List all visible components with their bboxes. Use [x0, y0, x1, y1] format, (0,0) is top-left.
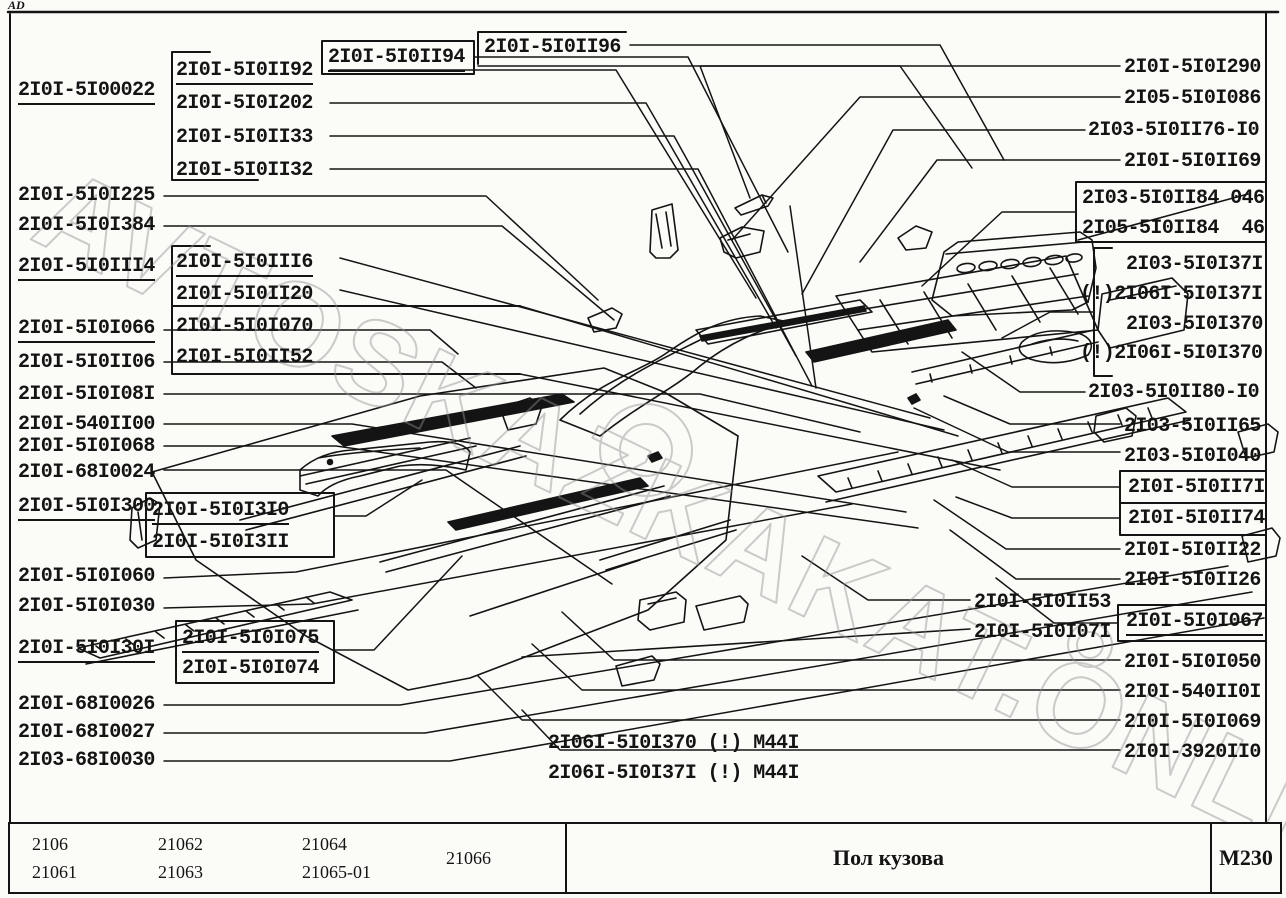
part-number-callout: 2I0I-5I0II92	[176, 60, 313, 85]
part-number-callout: 2I0I-5I0I075	[182, 628, 319, 653]
part-number-callout: 2I0I-540II0I	[1124, 682, 1261, 704]
part-number-callout: 2I03-5I0II80-I0	[1088, 382, 1259, 404]
part-number-callout: 2I0I-5I0I074	[182, 658, 319, 680]
model-number: 21064	[302, 834, 347, 855]
part-number-callout: 2I0I-3920II0	[1124, 742, 1261, 764]
part-number-callout: 2I0I-540II00	[18, 414, 155, 436]
part-number-callout: 2I0I-5I0I3II	[152, 532, 289, 554]
title-cell: Пол кузова	[567, 824, 1212, 892]
part-number-callout: 2I0I-5I0I300	[18, 496, 155, 521]
part-number-callout: 2I0I-5I0I050	[1124, 652, 1261, 674]
corner-mark: AD	[8, 0, 25, 13]
part-number-callout: 2I0I-5I0II32	[176, 160, 313, 182]
part-number-callout: 2I0I-5I0I30I	[18, 638, 155, 663]
model-number: 21061	[32, 862, 77, 883]
part-number-callout: 2I0I-5I0I202	[176, 93, 313, 115]
part-number-callout: 2I0I-5I0II06	[18, 352, 155, 374]
model-number: 2106	[32, 834, 68, 855]
model-number: 21066	[446, 848, 491, 869]
part-number-callout: 2I03-5I0II76-I0	[1088, 120, 1259, 142]
part-number-callout: (!)2I06I-5I0I37I	[1080, 284, 1262, 306]
part-number-callout: 2I0I-68I0024	[18, 462, 155, 484]
model-list-cell: 2106 21061 21062 21063 21064 21065-01 21…	[10, 824, 567, 892]
part-number-callout: 2I0I-5I0III6	[176, 252, 313, 277]
part-number-callout: 2I03-5I0I370	[1126, 314, 1263, 336]
part-number-callout: 2I06I-5I0I37I (!) M44I	[548, 763, 799, 785]
part-number-callout: 2I0I-5I0II53	[974, 592, 1111, 614]
sheet-code-cell: М230	[1212, 824, 1280, 892]
part-number-callout: 2I06I-5I0I370 (!) M44I	[548, 733, 799, 755]
part-number-callout: 2I03-5I0II65	[1124, 416, 1261, 438]
part-number-callout: 2I0I-68I0026	[18, 694, 155, 716]
part-number-callout: 2I0I-5I0I069	[1124, 712, 1261, 734]
part-number-callout: 2I0I-5I0I070	[176, 316, 313, 338]
part-number-callout: 2I0I-5I0I030	[18, 596, 155, 618]
part-number-callout: 2I05-5I0I086	[1124, 88, 1261, 110]
part-number-callout: 2I0I-5I0I08I	[18, 384, 155, 406]
part-number-callout: 2I0I-5I0II52	[176, 347, 313, 369]
part-number-callout: 2I0I-5I0II7I	[1128, 477, 1265, 499]
sheet-code: М230	[1219, 845, 1273, 871]
part-number-callouts: 2I0I-5I000222I0I-5I0I2252I0I-5I0I3842I0I…	[0, 0, 1286, 898]
part-number-callout: 2I0I-5I0I067	[1126, 611, 1263, 636]
part-number-callout: 2I0I-68I0027	[18, 722, 155, 744]
part-number-callout: 2I03-5I0II84 046	[1082, 188, 1264, 210]
part-number-callout: 2I0I-5I0I068	[18, 436, 155, 458]
part-number-callout: 2I0I-5I0II94	[328, 47, 465, 72]
footer-table: 2106 21061 21062 21063 21064 21065-01 21…	[8, 822, 1282, 894]
catalog-page: AD	[0, 0, 1286, 898]
part-number-callout: (!)2I06I-5I0I370	[1080, 343, 1262, 365]
part-number-callout: 2I0I-5I0I07I	[974, 622, 1111, 644]
part-number-callout: 2I0I-5I0II20	[176, 284, 313, 306]
part-number-callout: 2I0I-5I0I060	[18, 566, 155, 588]
part-number-callout: 2I0I-5I0II74	[1128, 508, 1265, 530]
part-number-callout: 2I05-5I0II84 46	[1082, 218, 1264, 240]
part-number-callout: 2I0I-5I0II96	[484, 37, 621, 59]
part-number-callout: 2I03-5I0I040	[1124, 446, 1261, 468]
page-title: Пол кузова	[833, 845, 944, 871]
part-number-callout: 2I0I-5I0I225	[18, 185, 155, 207]
part-number-callout: 2I0I-5I0II69	[1124, 151, 1261, 173]
model-number: 21065-01	[302, 862, 371, 883]
part-number-callout: 2I0I-5I0III4	[18, 256, 155, 281]
part-number-callout: 2I0I-5I0I3I0	[152, 500, 289, 525]
part-number-callout: 2I0I-5I0I384	[18, 215, 155, 237]
part-number-callout: 2I03-5I0I37I	[1126, 254, 1263, 276]
model-number: 21062	[158, 834, 203, 855]
part-number-callout: 2I0I-5I00022	[18, 80, 155, 105]
part-number-callout: 2I0I-5I0II33	[176, 127, 313, 149]
part-number-callout: 2I0I-5I0I066	[18, 318, 155, 343]
part-number-callout: 2I0I-5I0I290	[1124, 57, 1261, 79]
part-number-callout: 2I0I-5I0II26	[1124, 570, 1261, 592]
part-number-callout: 2I03-68I0030	[18, 750, 155, 772]
part-number-callout: 2I0I-5I0II22	[1124, 540, 1261, 562]
model-number: 21063	[158, 862, 203, 883]
